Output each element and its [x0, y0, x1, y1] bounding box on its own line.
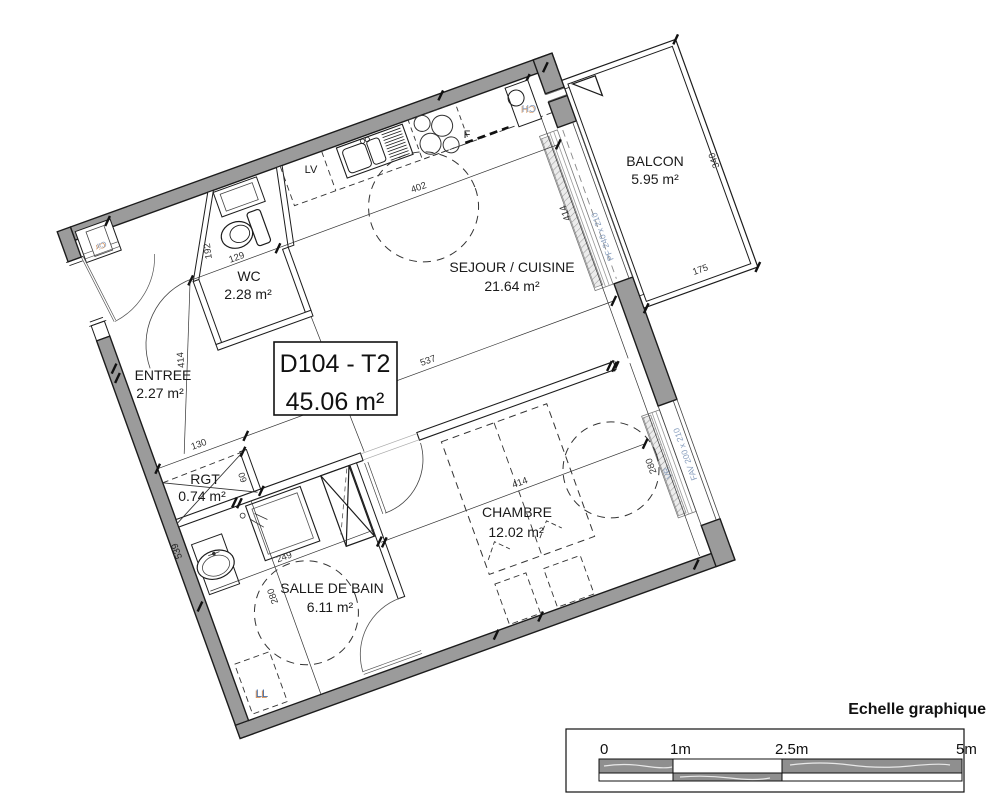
- svg-text:WC: WC: [237, 268, 260, 284]
- svg-text:F: F: [464, 129, 471, 141]
- svg-text:414: 414: [511, 475, 530, 491]
- svg-text:SEJOUR / CUISINE: SEJOUR / CUISINE: [449, 259, 574, 275]
- svg-text:45.06 m²: 45.06 m²: [286, 388, 385, 416]
- svg-text:2.5m: 2.5m: [775, 741, 808, 758]
- svg-text:0: 0: [600, 741, 608, 758]
- svg-text:CH: CH: [522, 102, 536, 113]
- svg-text:LL: LL: [256, 688, 268, 700]
- svg-text:12.02 m²: 12.02 m²: [488, 524, 544, 540]
- svg-text:CHAMBRE: CHAMBRE: [482, 504, 552, 520]
- svg-text:6.11 m²: 6.11 m²: [307, 599, 354, 615]
- svg-text:280: 280: [265, 587, 281, 606]
- svg-text:Echelle graphique: Echelle graphique: [848, 701, 986, 718]
- svg-text:1m: 1m: [670, 741, 691, 758]
- svg-text:130: 130: [190, 437, 209, 453]
- svg-text:2.28 m²: 2.28 m²: [224, 286, 272, 302]
- svg-text:RGT: RGT: [190, 471, 220, 487]
- svg-text:0.74 m²: 0.74 m²: [178, 488, 226, 504]
- svg-text:BALCON: BALCON: [626, 153, 684, 169]
- svg-text:SALLE DE BAIN: SALLE DE BAIN: [280, 580, 384, 596]
- svg-text:5m: 5m: [956, 741, 977, 758]
- svg-text:D104 - T2: D104 - T2: [280, 350, 391, 378]
- svg-text:192: 192: [202, 242, 215, 259]
- svg-text:LV: LV: [305, 164, 318, 176]
- svg-text:414: 414: [175, 352, 188, 369]
- svg-text:5.95 m²: 5.95 m²: [631, 171, 679, 187]
- svg-text:2.27 m²: 2.27 m²: [136, 385, 184, 401]
- svg-text:21.64 m²: 21.64 m²: [484, 278, 540, 294]
- svg-text:ENTREE: ENTREE: [135, 367, 192, 383]
